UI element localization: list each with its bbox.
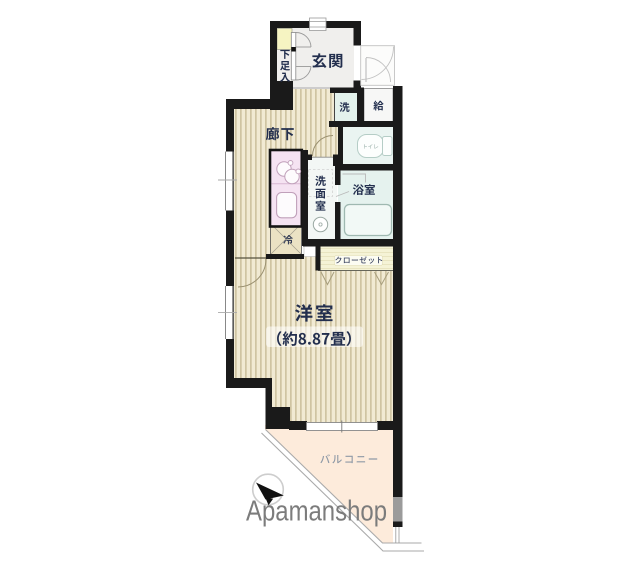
svg-text:Apamanshop: Apamanshop (246, 496, 387, 528)
